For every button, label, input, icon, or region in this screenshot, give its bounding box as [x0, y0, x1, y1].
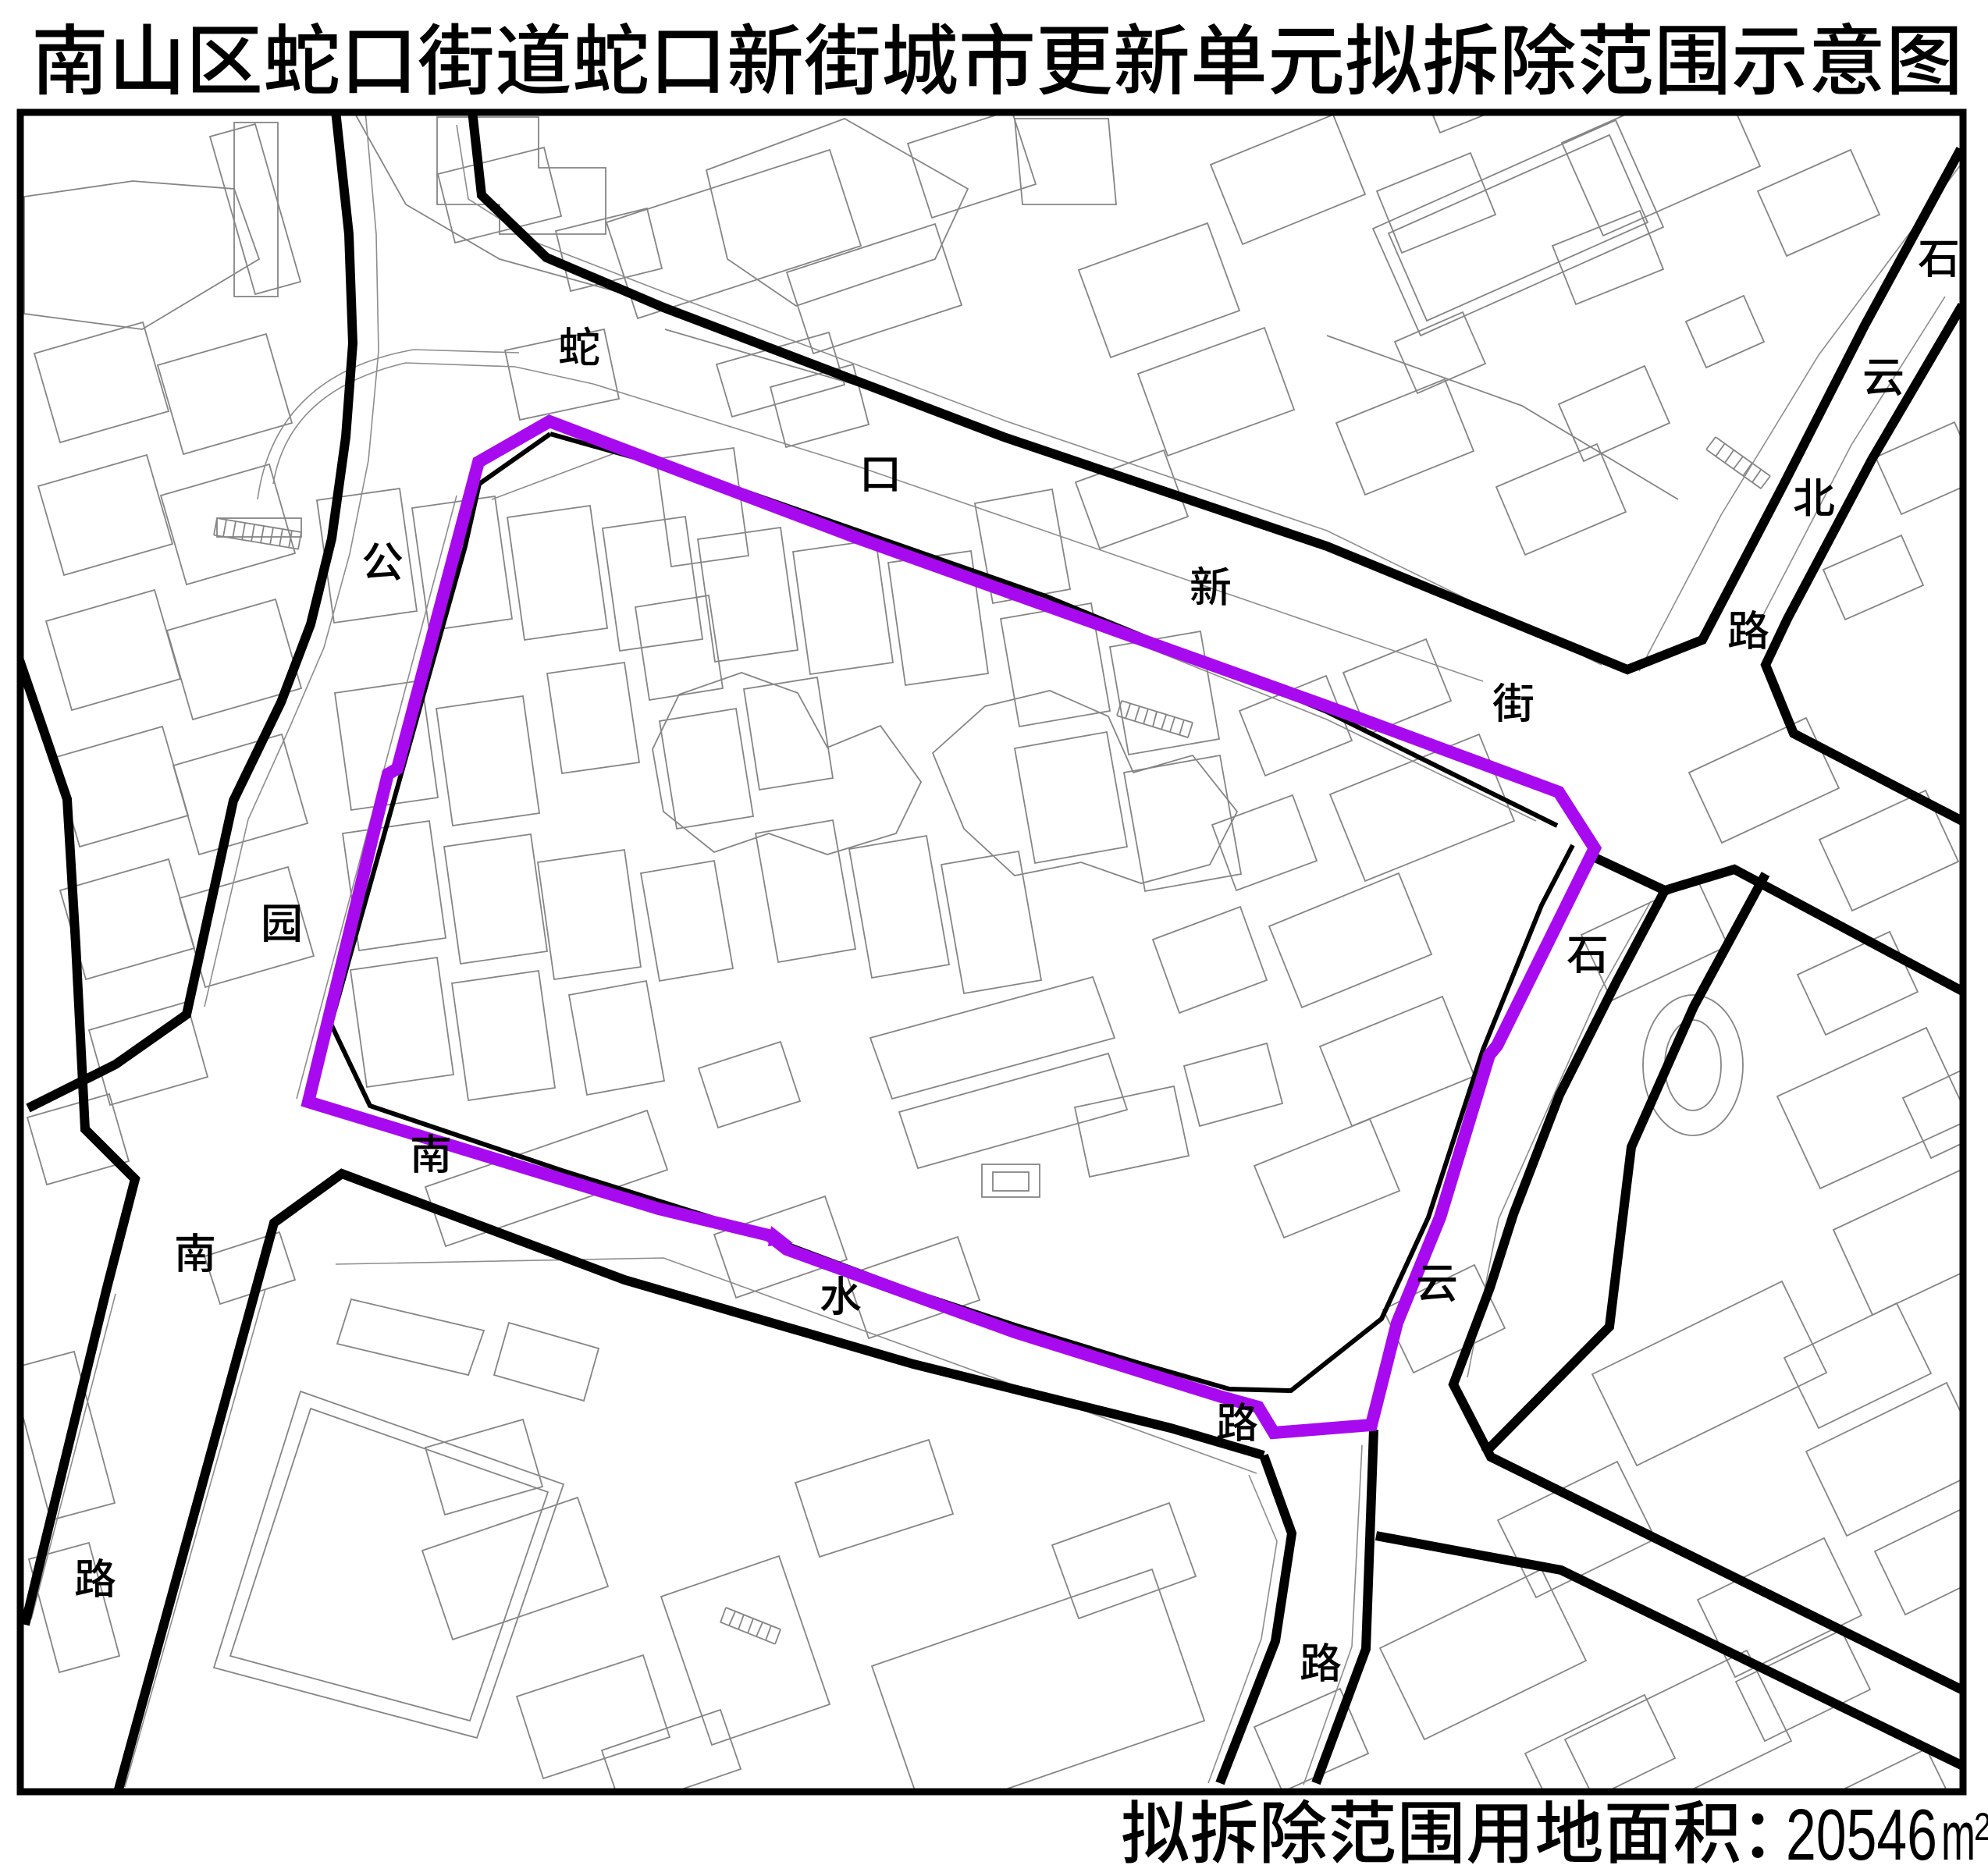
svg-text:20546: 20546 [1786, 1795, 1937, 1875]
svg-text:2: 2 [1974, 1805, 1988, 1849]
svg-text:m: m [1941, 1798, 1976, 1874]
